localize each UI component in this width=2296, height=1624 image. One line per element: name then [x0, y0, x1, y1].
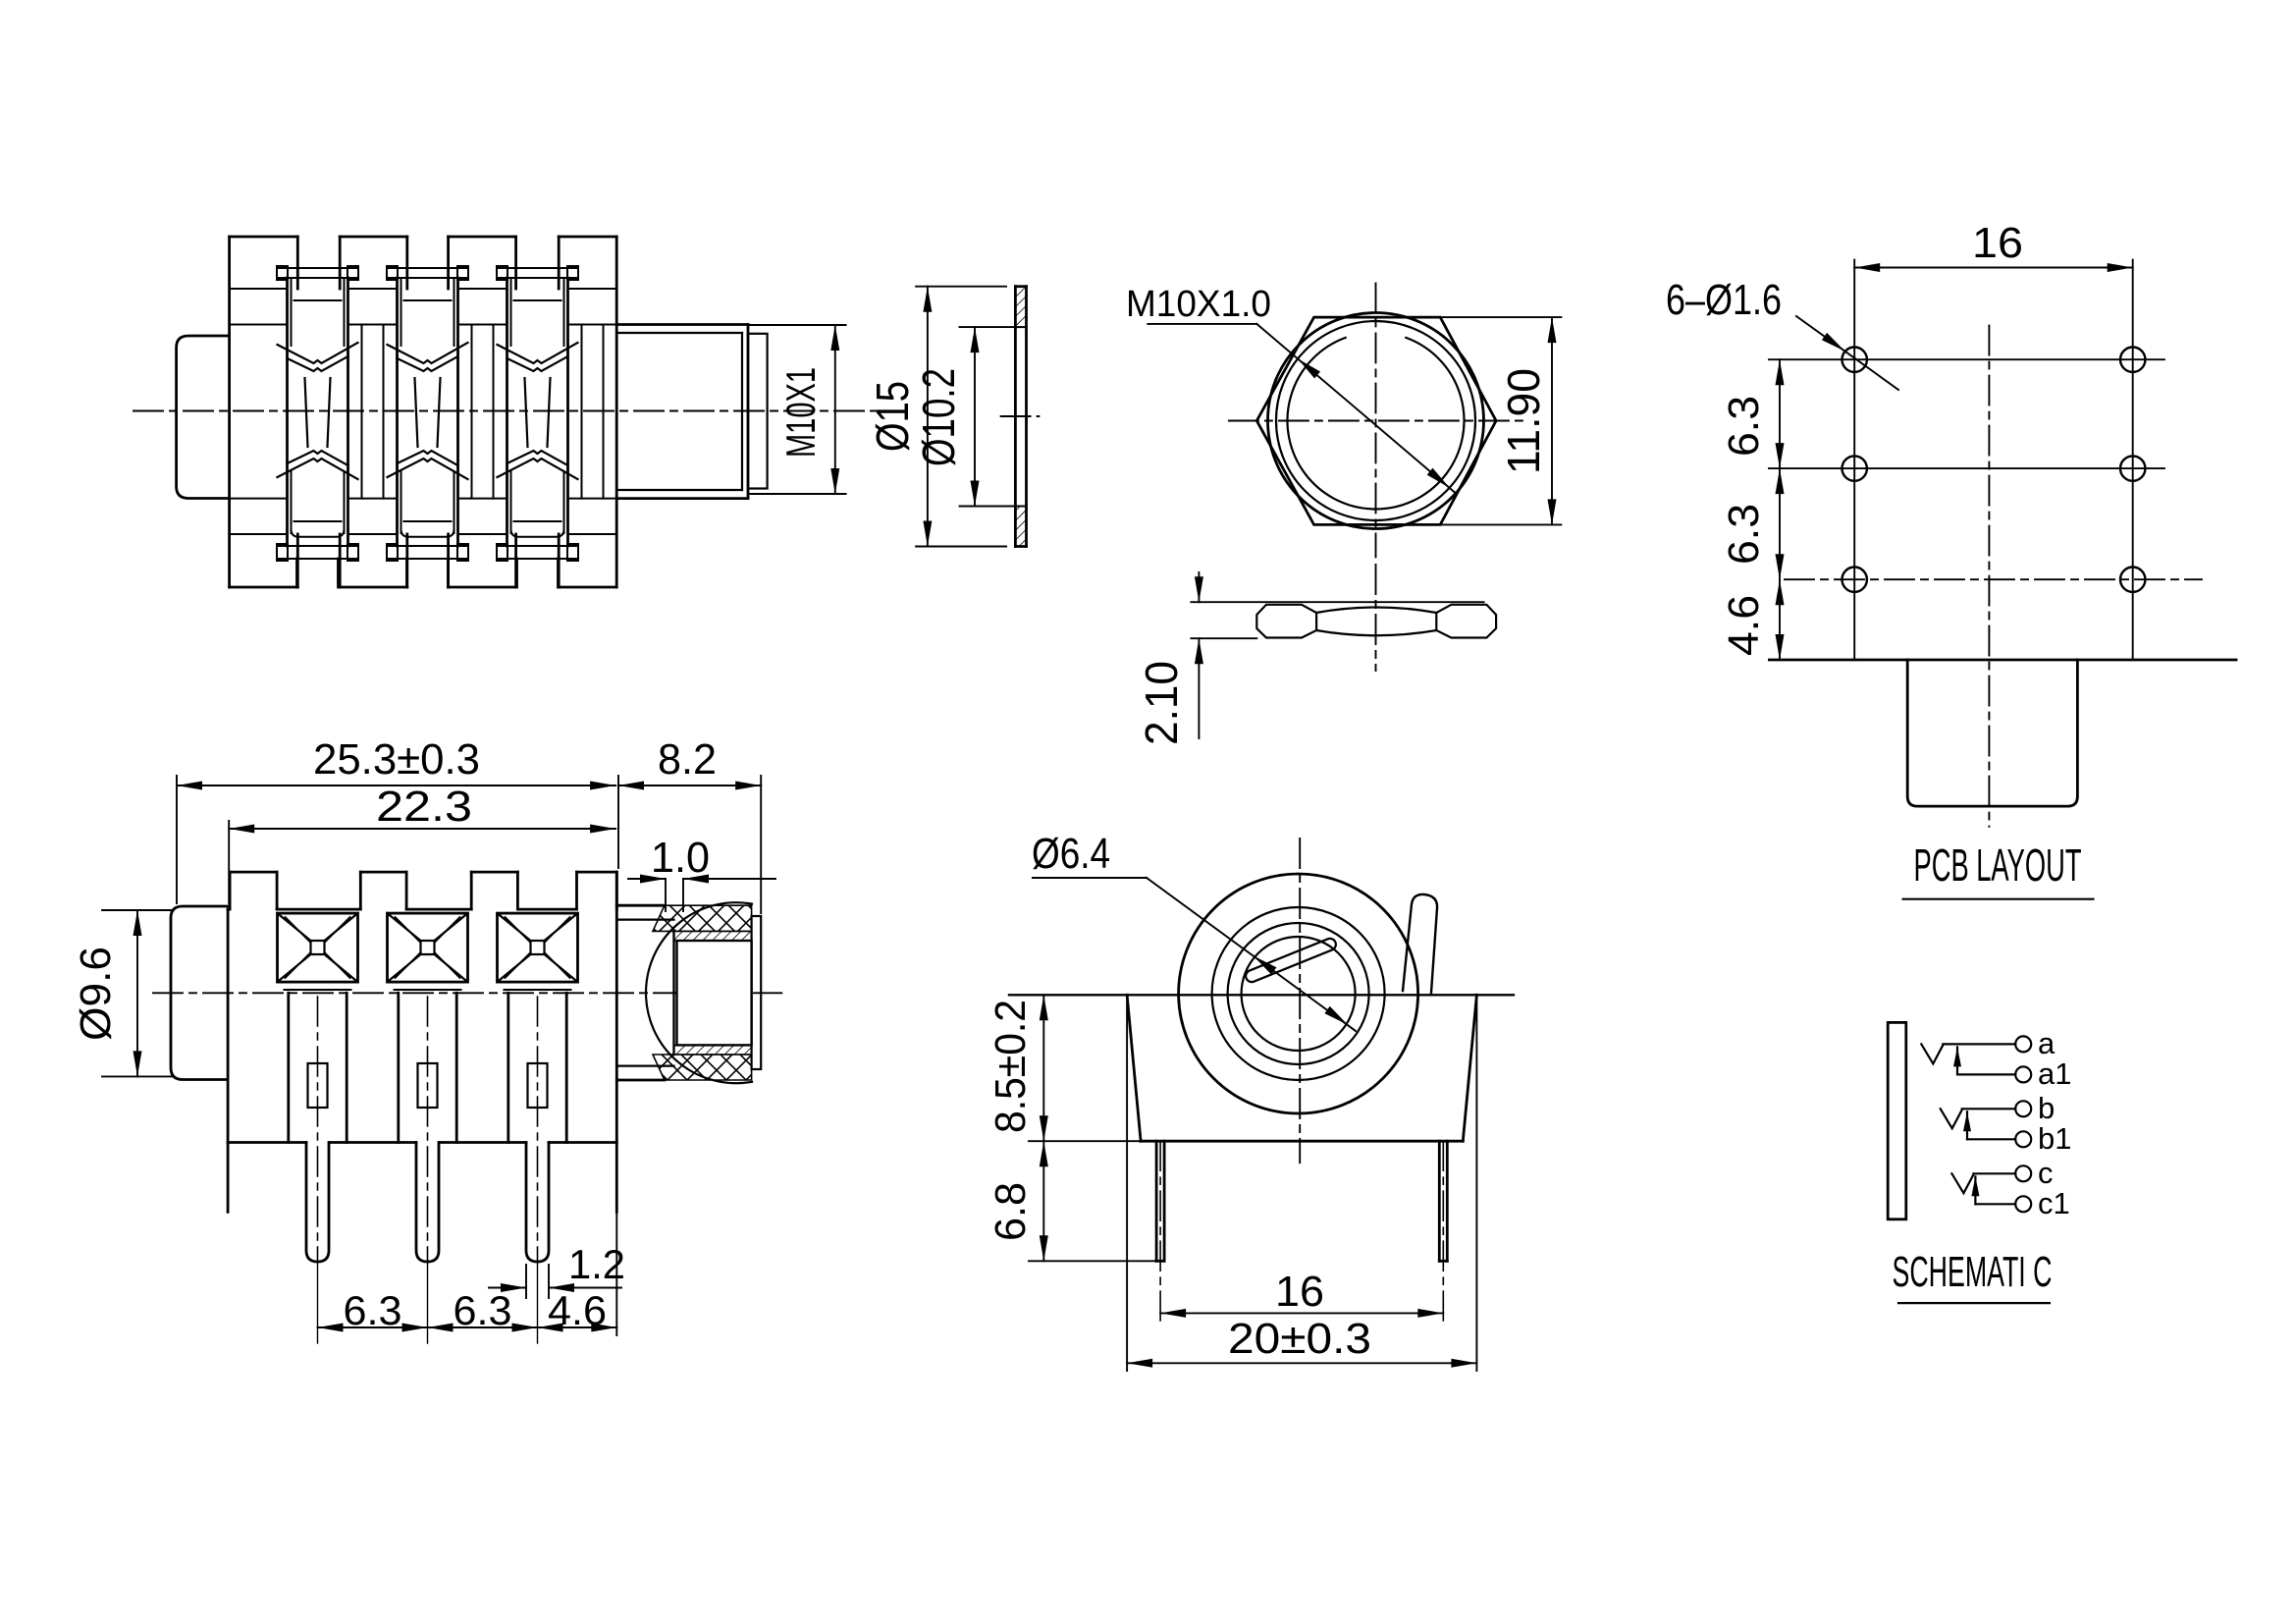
svg-text:8.2: 8.2	[658, 735, 717, 784]
svg-text:Ø9.6: Ø9.6	[72, 947, 120, 1041]
svg-text:SCHEMATI C: SCHEMATI C	[1893, 1248, 2053, 1296]
svg-text:b: b	[2038, 1091, 2055, 1125]
svg-text:6–Ø1.6: 6–Ø1.6	[1666, 276, 1782, 324]
svg-text:4.6: 4.6	[1720, 595, 1768, 656]
svg-text:c: c	[2038, 1156, 2054, 1190]
svg-text:b1: b1	[2038, 1121, 2071, 1156]
svg-text:20±0.3: 20±0.3	[1228, 1315, 1371, 1363]
svg-text:6.3: 6.3	[344, 1287, 402, 1333]
svg-text:2.10: 2.10	[1136, 661, 1187, 745]
svg-text:Ø10.2: Ø10.2	[913, 368, 964, 466]
svg-text:6.8: 6.8	[987, 1182, 1035, 1241]
svg-text:a: a	[2038, 1026, 2056, 1060]
svg-text:8.5±0.2: 8.5±0.2	[987, 1000, 1035, 1133]
svg-text:16: 16	[1972, 219, 2023, 267]
svg-text:16: 16	[1275, 1268, 1324, 1316]
svg-text:6.3: 6.3	[454, 1287, 512, 1333]
svg-text:Ø6.4: Ø6.4	[1032, 830, 1110, 878]
svg-text:6.3: 6.3	[1720, 396, 1768, 457]
svg-text:11.90: 11.90	[1498, 368, 1549, 474]
svg-text:Ø15: Ø15	[867, 381, 918, 452]
svg-text:PCB LAYOUT: PCB LAYOUT	[1914, 839, 2082, 891]
svg-text:25.3±0.3: 25.3±0.3	[313, 735, 480, 784]
svg-text:M10X1: M10X1	[777, 367, 824, 458]
svg-text:6.3: 6.3	[1720, 504, 1768, 565]
svg-text:22.3: 22.3	[376, 783, 472, 831]
svg-text:1.0: 1.0	[651, 834, 710, 882]
svg-text:4.6: 4.6	[548, 1287, 607, 1333]
svg-text:M10X1.0: M10X1.0	[1126, 284, 1271, 325]
svg-text:c1: c1	[2038, 1186, 2070, 1220]
svg-text:a1: a1	[2038, 1056, 2071, 1091]
